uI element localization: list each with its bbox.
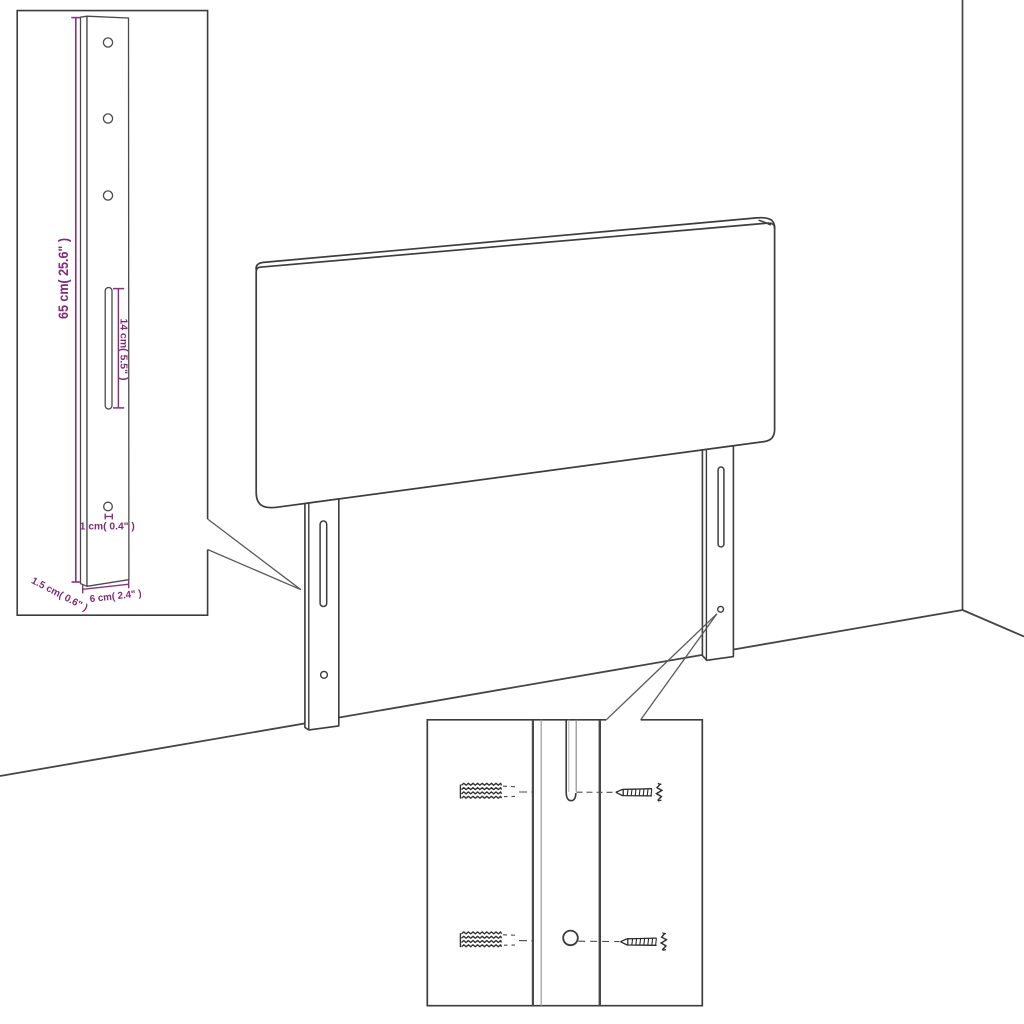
svg-text:65 cm( 25.6" ): 65 cm( 25.6" )	[55, 238, 71, 319]
svg-text:1 cm( 0.4" ): 1 cm( 0.4" )	[80, 522, 135, 533]
svg-text:14 cm( 5.5" ): 14 cm( 5.5" )	[118, 319, 130, 381]
